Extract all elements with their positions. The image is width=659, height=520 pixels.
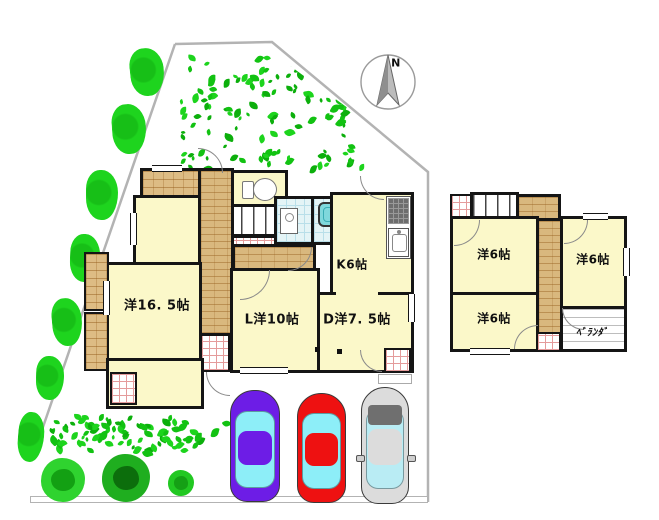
car-roof (368, 429, 401, 465)
car-silver (361, 387, 409, 504)
car-mirror-icon (356, 455, 365, 462)
floorplan-canvas: N (0, 0, 659, 520)
car-red (297, 393, 346, 503)
car-sunroof (368, 405, 402, 425)
car-roof (305, 433, 339, 467)
car-purple (230, 390, 280, 502)
car-roof (238, 431, 273, 465)
cars-layer (0, 0, 659, 520)
car-mirror-icon (407, 455, 416, 462)
